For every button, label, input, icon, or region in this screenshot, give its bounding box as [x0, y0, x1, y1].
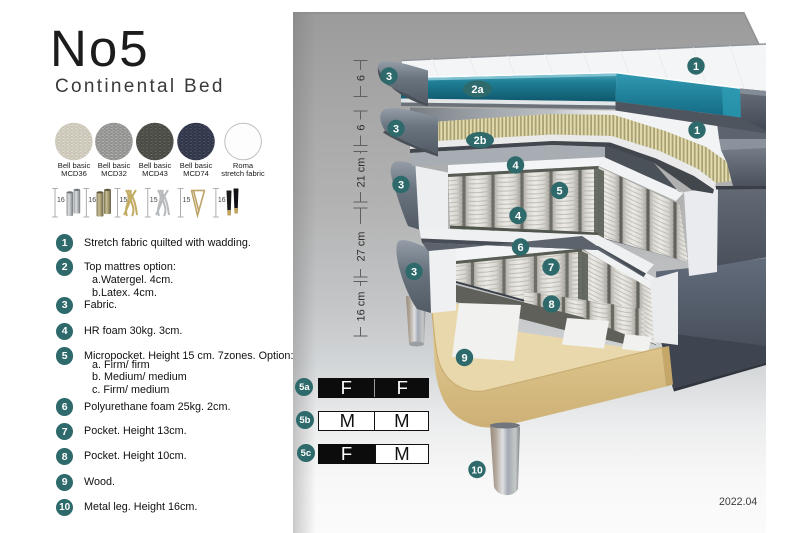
svg-text:6: 6 [356, 124, 368, 130]
svg-text:4: 4 [512, 160, 519, 172]
svg-text:6: 6 [356, 75, 368, 81]
svg-text:5: 5 [556, 185, 562, 197]
svg-text:3: 3 [386, 71, 392, 83]
svg-text:9: 9 [461, 352, 467, 364]
svg-text:2a: 2a [471, 84, 484, 96]
svg-text:3: 3 [393, 123, 399, 135]
svg-text:10: 10 [471, 465, 483, 476]
svg-text:4: 4 [515, 210, 522, 222]
svg-text:3: 3 [411, 266, 417, 278]
svg-text:1: 1 [693, 61, 699, 73]
svg-text:7: 7 [548, 262, 554, 274]
svg-text:21 cm: 21 cm [356, 158, 368, 188]
svg-text:16 cm: 16 cm [356, 292, 368, 322]
svg-text:6: 6 [517, 242, 523, 254]
svg-text:27 cm: 27 cm [356, 232, 368, 262]
svg-text:2b: 2b [474, 135, 487, 147]
svg-text:1: 1 [694, 125, 700, 137]
svg-text:3: 3 [398, 179, 404, 191]
svg-text:8: 8 [548, 299, 554, 311]
